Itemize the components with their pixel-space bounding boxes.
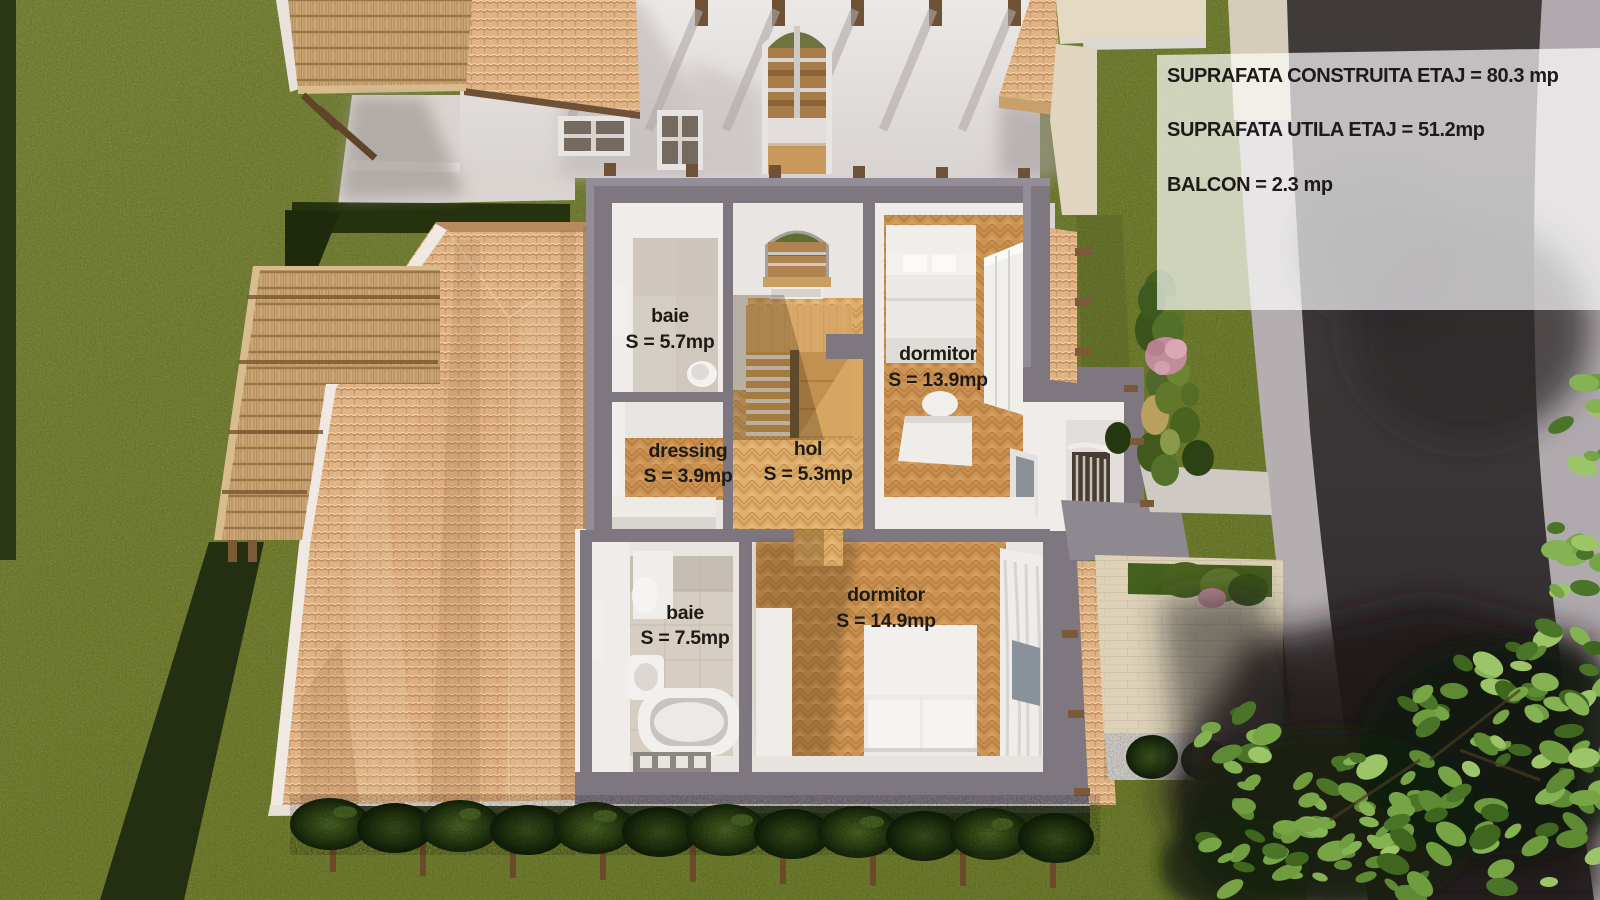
svg-text:SUPRAFATA UTILA ETAJ = 51.2mp: SUPRAFATA UTILA ETAJ = 51.2mp (1167, 119, 1485, 141)
svg-text:S = 5.7mp: S = 5.7mp (626, 331, 715, 353)
svg-text:S = 3.9mp: S = 3.9mp (644, 465, 733, 487)
svg-text:SUPRAFATA CONSTRUITA ETAJ = 80: SUPRAFATA CONSTRUITA ETAJ = 80.3 mp (1167, 65, 1559, 87)
svg-text:S = 5.3mp: S = 5.3mp (764, 463, 853, 485)
svg-text:S = 13.9mp: S = 13.9mp (888, 369, 988, 391)
svg-text:dormitor: dormitor (847, 584, 925, 606)
svg-text:dressing: dressing (649, 440, 728, 462)
svg-text:dormitor: dormitor (899, 343, 977, 365)
svg-text:baie: baie (666, 602, 704, 624)
svg-text:BALCON = 2.3 mp: BALCON = 2.3 mp (1167, 174, 1333, 196)
svg-text:S = 14.9mp: S = 14.9mp (836, 610, 936, 632)
svg-text:S = 7.5mp: S = 7.5mp (641, 627, 730, 649)
svg-text:baie: baie (651, 305, 689, 327)
svg-text:hol: hol (794, 438, 822, 460)
